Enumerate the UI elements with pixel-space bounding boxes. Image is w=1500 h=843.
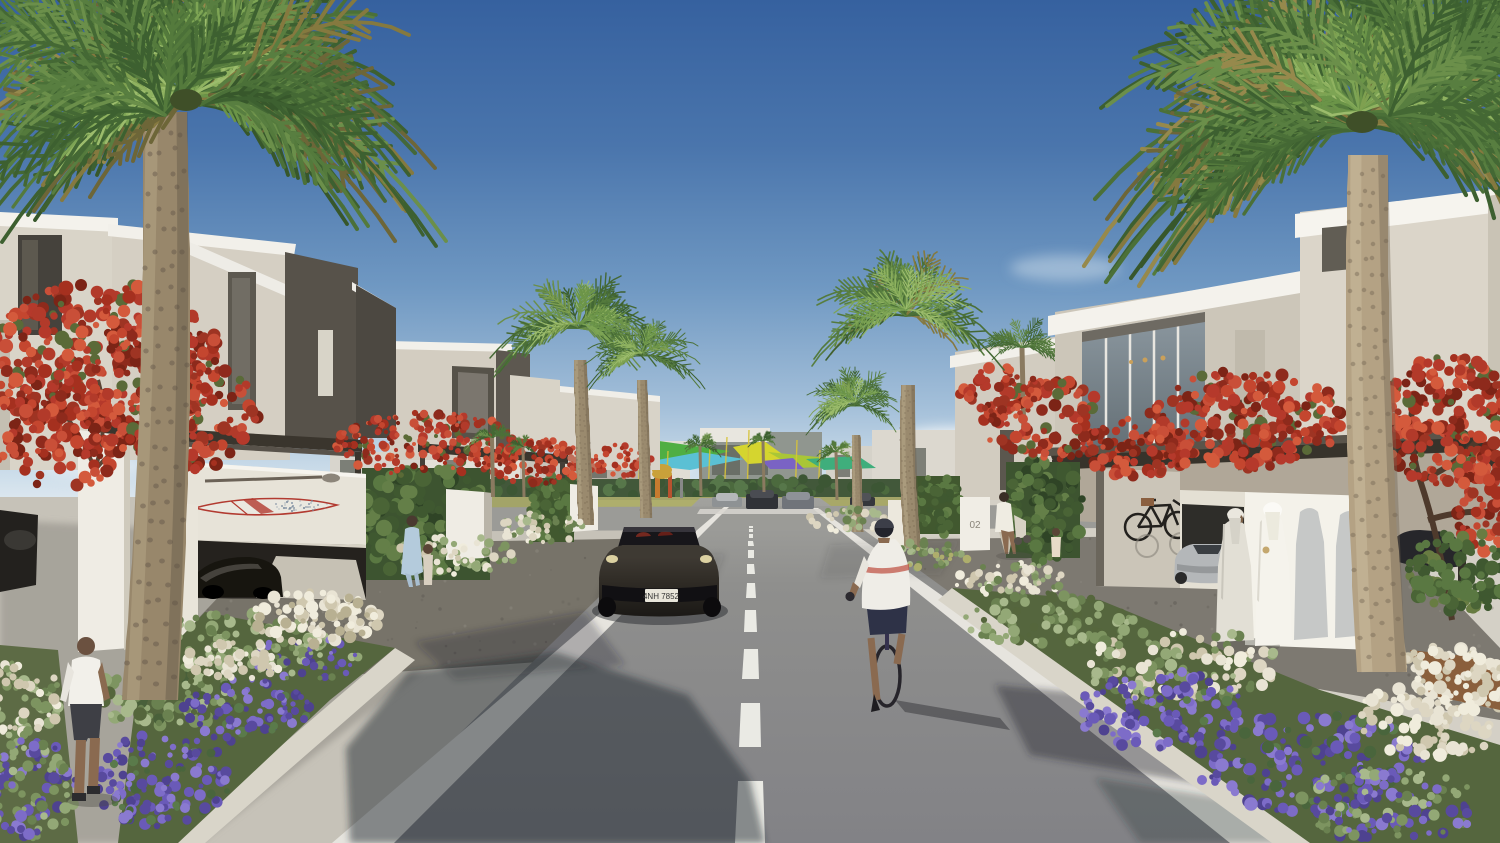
svg-text:02: 02 — [969, 520, 981, 531]
